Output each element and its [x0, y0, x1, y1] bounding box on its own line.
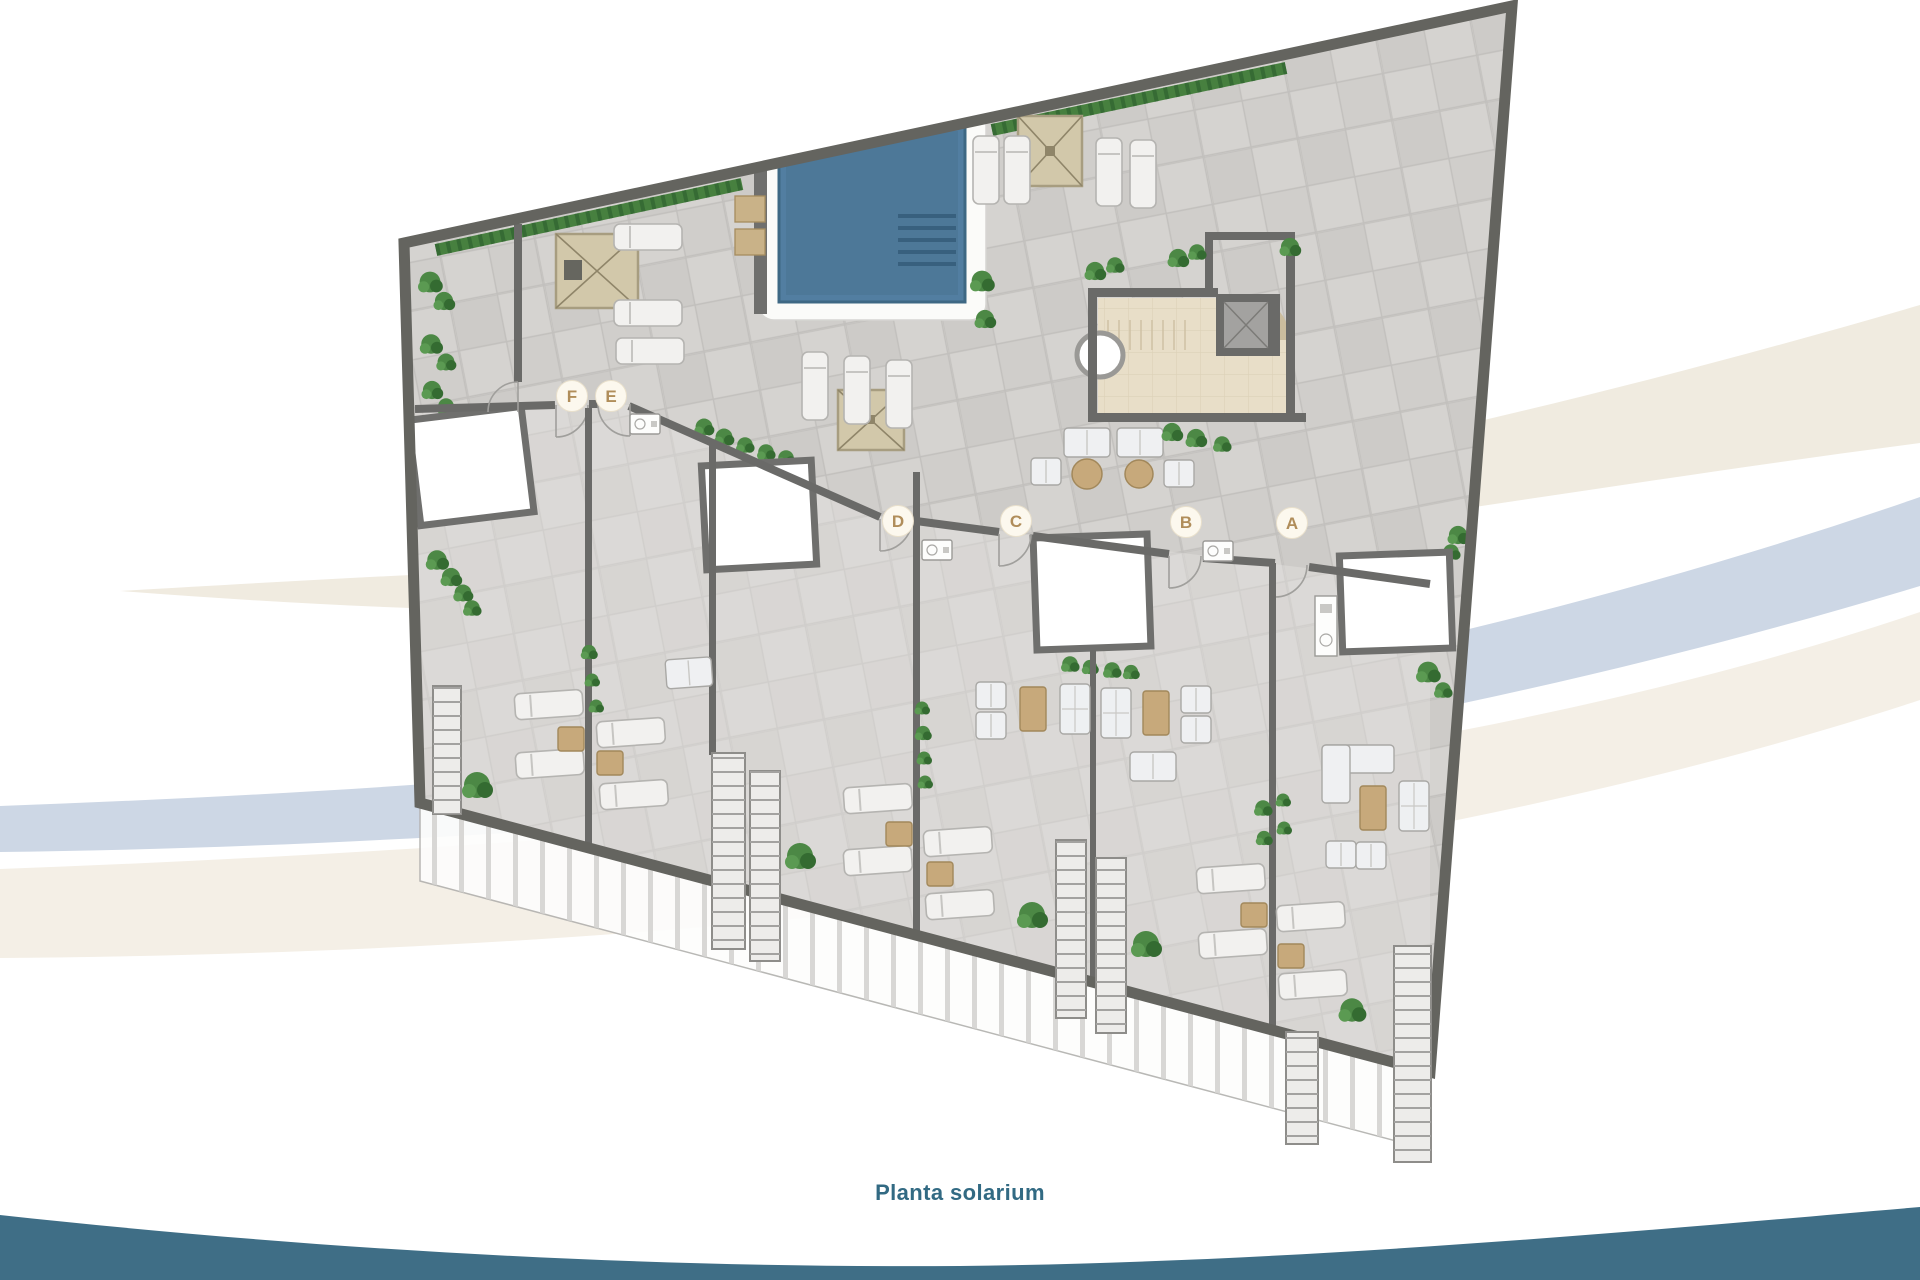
unit-letter: A: [1286, 514, 1298, 533]
elevator: [1216, 294, 1280, 356]
bottom-wave: [0, 1207, 1920, 1280]
solarium-plan-figure: F E D C B A: [0, 0, 1920, 1280]
unit-letter: D: [892, 512, 904, 531]
skylight-2: [701, 460, 816, 570]
page: F E D C B A Planta solarium: [0, 0, 1920, 1280]
unit-letter: B: [1180, 513, 1192, 532]
unit-marker-a[interactable]: A: [1277, 508, 1308, 539]
unit-letter: E: [605, 387, 616, 406]
unit-letter: F: [567, 387, 577, 406]
skylight-1: [408, 406, 534, 525]
unit-marker-c[interactable]: C: [1001, 506, 1032, 537]
skylight-4: [1339, 552, 1452, 652]
unit-letter: C: [1010, 512, 1022, 531]
unit-marker-b[interactable]: B: [1171, 507, 1202, 538]
stairs-icon: [433, 686, 461, 814]
bar-basin: [1077, 333, 1123, 377]
unit-marker-e[interactable]: E: [596, 381, 627, 412]
floor-caption: Planta solarium: [0, 1180, 1920, 1206]
unit-marker-f[interactable]: F: [557, 381, 588, 412]
swimming-pool: [735, 104, 986, 320]
sink-icon: [1315, 596, 1337, 656]
unit-marker-d[interactable]: D: [883, 506, 914, 537]
